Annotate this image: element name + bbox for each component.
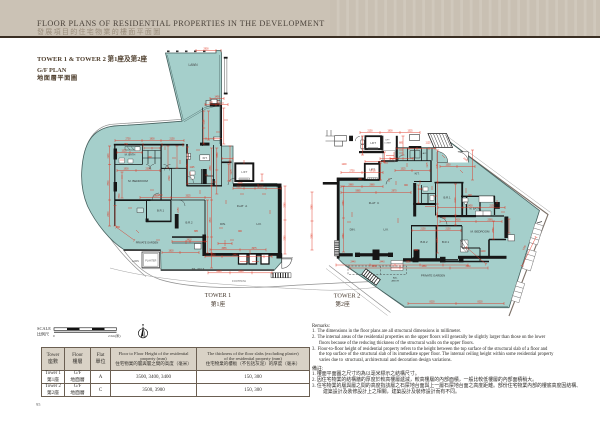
svg-text:1975: 1975	[231, 169, 233, 175]
svg-text:1830: 1830	[168, 251, 174, 253]
svg-text:3325: 3325	[185, 196, 191, 198]
svg-text:1550: 1550	[405, 262, 411, 264]
svg-text:TOWER 2: TOWER 2	[334, 293, 361, 300]
svg-text:3660: 3660	[465, 266, 471, 268]
svg-text:1200: 1200	[341, 164, 347, 166]
svg-text:2600: 2600	[108, 211, 110, 217]
svg-text:3100: 3100	[455, 197, 457, 203]
svg-text:4880: 4880	[371, 266, 377, 268]
svg-text:LIV.: LIV.	[257, 222, 262, 226]
svg-text:DIN.: DIN.	[350, 228, 356, 232]
svg-text:2580: 2580	[487, 220, 493, 222]
svg-text:2390: 2390	[145, 169, 151, 171]
svg-text:4880: 4880	[421, 266, 427, 268]
svg-text:3360: 3360	[343, 233, 345, 239]
svg-text:1525: 1525	[121, 151, 127, 153]
svg-text:3360: 3360	[285, 202, 287, 208]
svg-text:2880: 2880	[369, 185, 375, 187]
svg-text:3880: 3880	[210, 165, 212, 171]
svg-text:3655: 3655	[221, 248, 227, 250]
svg-text:1680: 1680	[210, 255, 216, 257]
svg-text:LIFT: LIFT	[385, 140, 390, 142]
svg-text:2750: 2750	[125, 139, 131, 141]
svg-text:3150: 3150	[437, 163, 439, 169]
svg-text:1900: 1900	[108, 153, 110, 159]
svg-text:FLAT A: FLAT A	[237, 204, 247, 208]
svg-text:A/C: A/C	[423, 152, 427, 155]
svg-text:2215: 2215	[237, 183, 243, 185]
svg-text:KIT.: KIT.	[415, 172, 420, 176]
svg-text:8230: 8230	[477, 302, 483, 304]
svg-text:1350: 1350	[445, 165, 451, 167]
svg-text:3500: 3500	[119, 193, 121, 199]
svg-text:1125: 1125	[190, 167, 196, 169]
svg-text:2900: 2900	[203, 49, 209, 51]
svg-text:B.R.1: B.R.1	[444, 196, 451, 200]
svg-text:2150: 2150	[437, 212, 439, 218]
svg-text:BAL. UNIT B: BAL. UNIT B	[192, 267, 205, 270]
svg-text:1490: 1490	[214, 97, 220, 99]
svg-text:2150: 2150	[445, 229, 451, 231]
svg-text:比例尺: 比例尺	[37, 330, 49, 336]
svg-text:3360: 3360	[285, 235, 287, 241]
svg-text:3360: 3360	[343, 200, 345, 206]
svg-text:2390: 2390	[169, 175, 171, 181]
svg-text:B.R.1: B.R.1	[442, 240, 449, 244]
svg-text:2150: 2150	[489, 206, 495, 208]
svg-text:2750: 2750	[370, 171, 376, 173]
svg-text:PRIVATE GARDEN: PRIVATE GARDEN	[421, 273, 445, 277]
svg-text:ABOVE: ABOVE	[392, 280, 400, 283]
svg-text:3810: 3810	[186, 240, 192, 242]
svg-text:1525: 1525	[407, 131, 413, 133]
svg-text:LIV.: LIV.	[384, 228, 389, 232]
svg-text:PRIVATE GARDEN: PRIVATE GARDEN	[136, 241, 159, 245]
svg-text:TOWER 1: TOWER 1	[205, 292, 232, 299]
svg-text:第1座: 第1座	[211, 300, 226, 308]
svg-text:LIFT: LIFT	[241, 170, 247, 174]
svg-text:2150: 2150	[169, 139, 175, 141]
svg-text:2440: 2440	[238, 271, 244, 273]
svg-text:1125: 1125	[203, 119, 205, 125]
svg-text:2440: 2440	[350, 262, 356, 264]
svg-text:1800: 1800	[149, 139, 155, 141]
svg-text:2215: 2215	[258, 186, 264, 188]
svg-text:B.R.2: B.R.2	[186, 221, 193, 225]
svg-text:FOOTPATH: FOOTPATH	[232, 279, 246, 283]
svg-text:2750: 2750	[349, 171, 355, 173]
svg-text:第2座: 第2座	[335, 300, 350, 308]
svg-text:2440: 2440	[232, 255, 238, 257]
svg-text:1975: 1975	[427, 162, 429, 168]
svg-text:LIFT: LIFT	[370, 141, 376, 145]
svg-text:2.5m(米): 2.5m(米)	[108, 333, 121, 338]
svg-text:1450: 1450	[467, 206, 473, 208]
svg-text:2580: 2580	[493, 227, 495, 233]
svg-text:3880: 3880	[217, 152, 219, 158]
svg-text:2440: 2440	[216, 271, 222, 273]
svg-text:0: 0	[53, 334, 55, 338]
svg-text:B.R.1: B.R.1	[157, 209, 164, 213]
svg-text:2440: 2440	[379, 262, 385, 264]
svg-text:1900: 1900	[123, 169, 129, 171]
svg-text:2880: 2880	[348, 185, 354, 187]
svg-text:1830: 1830	[157, 195, 163, 197]
svg-text:3975: 3975	[251, 248, 257, 250]
svg-text:PLANTER: PLANTER	[145, 260, 156, 263]
svg-text:LOBBY: LOBBY	[384, 142, 391, 144]
svg-text:1125: 1125	[418, 189, 424, 191]
svg-text:B.R.2: B.R.2	[421, 240, 428, 244]
svg-text:BAL.: BAL.	[393, 277, 398, 280]
svg-text:2750: 2750	[437, 237, 439, 243]
svg-text:2150: 2150	[178, 207, 180, 213]
svg-text:1525: 1525	[400, 169, 406, 171]
svg-text:DIN.: DIN.	[220, 222, 226, 226]
svg-text:3360: 3360	[312, 204, 314, 210]
svg-text:2970: 2970	[391, 191, 397, 193]
svg-text:LAWN: LAWN	[188, 63, 198, 67]
svg-text:FLAT C: FLAT C	[369, 201, 380, 205]
svg-text:3500: 3500	[108, 180, 110, 186]
svg-text:1125: 1125	[426, 143, 432, 145]
svg-text:2150: 2150	[367, 131, 373, 133]
svg-text:KIT.: KIT.	[203, 156, 208, 160]
svg-text:2215: 2215	[236, 186, 242, 188]
svg-text:M. BEDROOM: M. BEDROOM	[471, 230, 491, 234]
svg-text:2150: 2150	[420, 229, 426, 231]
svg-text:5985: 5985	[355, 191, 361, 193]
svg-text:M. BEDROOM: M. BEDROOM	[128, 179, 148, 183]
svg-text:3030: 3030	[455, 220, 461, 222]
svg-text:1800: 1800	[387, 131, 393, 133]
svg-text:1200: 1200	[480, 251, 486, 253]
svg-text:3360: 3360	[312, 233, 314, 239]
svg-text:8230: 8230	[429, 302, 435, 304]
svg-text:3810: 3810	[210, 217, 212, 223]
svg-text:LAWN: LAWN	[132, 260, 139, 263]
